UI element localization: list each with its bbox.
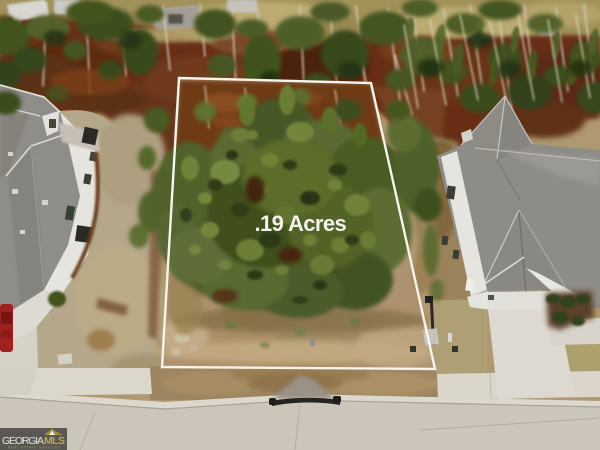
- svg-text:.19 Acres: .19 Acres: [255, 211, 347, 236]
- svg-text:REAL ESTATE SERVICES: REAL ESTATE SERVICES: [8, 446, 60, 450]
